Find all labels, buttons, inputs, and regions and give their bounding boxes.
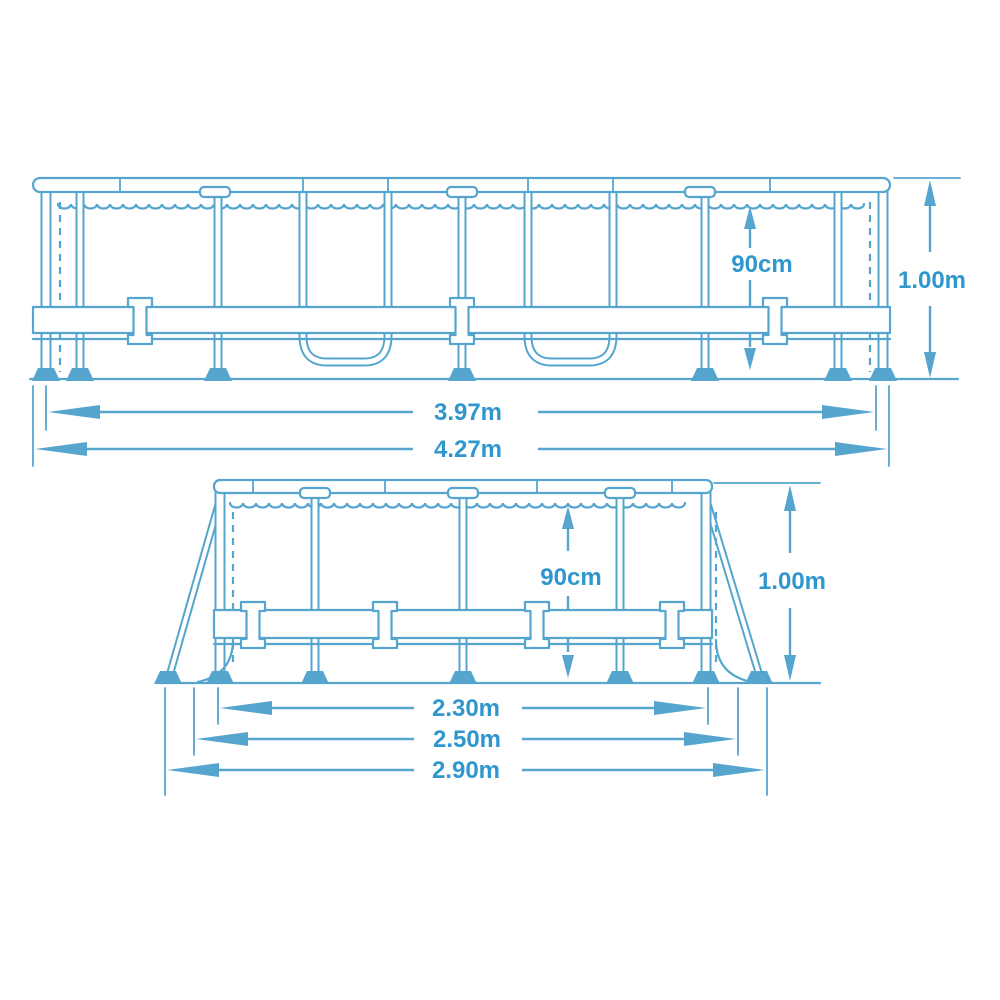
u-support-left — [303, 192, 388, 362]
arrowhead-left — [196, 732, 248, 746]
dimension-label: 4.27m — [434, 436, 502, 463]
arrowhead-right — [713, 763, 765, 777]
leg-foot — [869, 368, 897, 381]
u-support-right — [528, 192, 613, 362]
arrowhead-up — [562, 506, 574, 529]
rail-sleeve — [448, 488, 478, 498]
side-view-diagram: 90cm 1.00m 3.97m 4.27m — [30, 178, 966, 466]
u-support-left — [303, 192, 388, 362]
arrowhead-right — [684, 732, 736, 746]
arrowhead-down — [562, 655, 574, 678]
arrowhead-left — [167, 763, 219, 777]
rail-sleeve — [447, 187, 477, 197]
arrowhead-down — [924, 352, 936, 378]
leg-foot — [448, 368, 476, 381]
arrowhead-left — [220, 701, 272, 715]
arrowhead-up — [784, 485, 796, 511]
leg-foot — [204, 368, 232, 381]
leg-foot — [66, 368, 94, 381]
side-pool-structure — [30, 178, 958, 381]
pool-dimensions-diagram: 90cm 1.00m 3.97m 4.27m — [0, 0, 1000, 1000]
depth-annotation — [744, 206, 756, 370]
depth-annotation — [562, 506, 574, 678]
dimension-label: 1.00m — [758, 568, 826, 595]
slant-brace-left — [170, 492, 222, 674]
leg-foot — [691, 368, 719, 381]
side-height-dimension: 1.00m — [894, 178, 966, 378]
arrowhead-down — [744, 348, 756, 370]
dimension-label: 2.50m — [433, 726, 501, 753]
side-outer-length-dimension: 4.27m — [33, 386, 889, 466]
rail-sleeve — [300, 488, 330, 498]
end-inner-width-dimension: 2.30m — [218, 688, 708, 724]
dimension-label: 2.30m — [432, 695, 500, 722]
arrowhead-left — [35, 442, 87, 456]
leg-foot — [154, 671, 182, 684]
arrowhead-right — [654, 701, 706, 715]
leg-foot — [449, 671, 477, 684]
u-support-right — [528, 192, 613, 362]
end-pool-structure — [154, 480, 820, 684]
leg-foot — [301, 671, 329, 684]
slant-brace-right — [704, 492, 759, 674]
leg-foot — [824, 368, 852, 381]
corner-curve-right — [716, 640, 751, 682]
rail-sleeve — [685, 187, 715, 197]
end-view-diagram: 90cm 1.00m 2.30m 2.50m — [154, 480, 826, 795]
arrowhead-up — [924, 180, 936, 206]
dimension-label: 1.00m — [898, 267, 966, 294]
leg-foot — [692, 671, 720, 684]
depth-label: 90cm — [731, 251, 792, 278]
side-inner-length-dimension: 3.97m — [46, 386, 876, 430]
arrowhead-right — [822, 405, 874, 419]
depth-label: 90cm — [540, 564, 601, 591]
arrowhead-left — [48, 405, 100, 419]
leg-foot — [32, 368, 60, 381]
dimension-label: 2.90m — [432, 757, 500, 784]
leg-foot — [606, 671, 634, 684]
frame-band — [214, 610, 712, 638]
arrowhead-down — [784, 655, 796, 681]
rail-sleeve — [605, 488, 635, 498]
arrowhead-right — [835, 442, 887, 456]
rail-sleeve — [200, 187, 230, 197]
dimension-label: 3.97m — [434, 399, 502, 426]
